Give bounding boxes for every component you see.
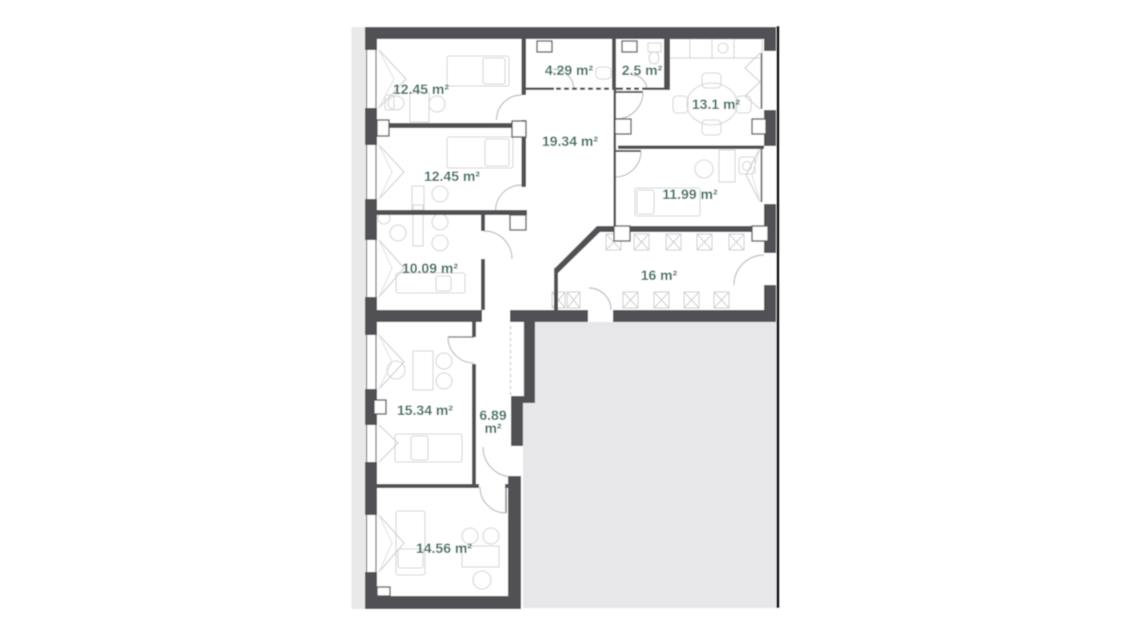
svg-text:4.29 m²: 4.29 m² xyxy=(545,62,594,78)
svg-text:16 m²: 16 m² xyxy=(641,267,678,283)
svg-text:13.1 m²: 13.1 m² xyxy=(692,96,741,112)
svg-text:2.5 m²: 2.5 m² xyxy=(622,62,663,78)
svg-text:19.34 m²: 19.34 m² xyxy=(542,133,598,149)
svg-text:11.99 m²: 11.99 m² xyxy=(662,186,718,202)
svg-text:12.45 m²: 12.45 m² xyxy=(393,81,449,97)
svg-text:10.09 m²: 10.09 m² xyxy=(402,260,458,276)
svg-text:12.45 m²: 12.45 m² xyxy=(424,168,480,184)
svg-text:15.34 m²: 15.34 m² xyxy=(397,402,453,418)
svg-text:m²: m² xyxy=(484,420,501,436)
svg-text:14.56 m²: 14.56 m² xyxy=(416,540,472,556)
